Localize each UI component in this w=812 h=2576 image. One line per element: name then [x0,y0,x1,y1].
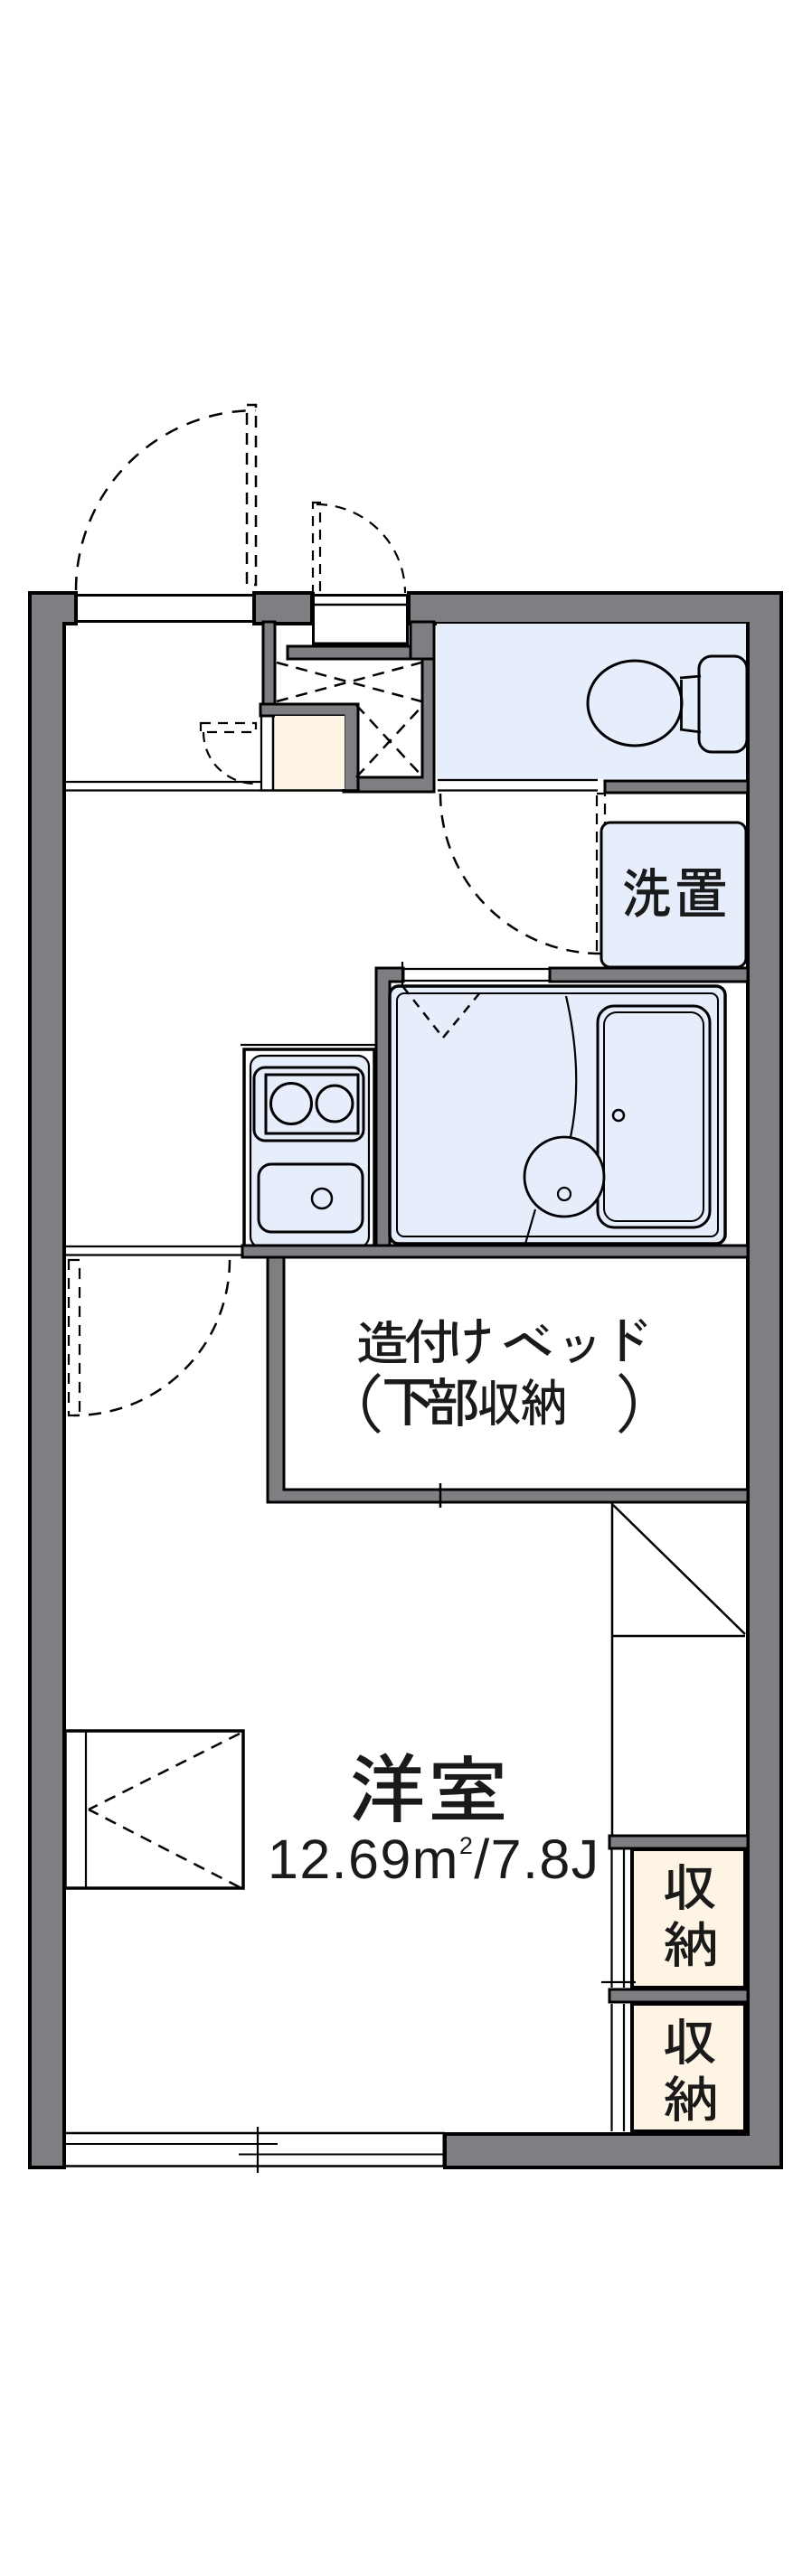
svg-text:12.69m2/7.8J: 12.69m2/7.8J [268,1829,600,1890]
